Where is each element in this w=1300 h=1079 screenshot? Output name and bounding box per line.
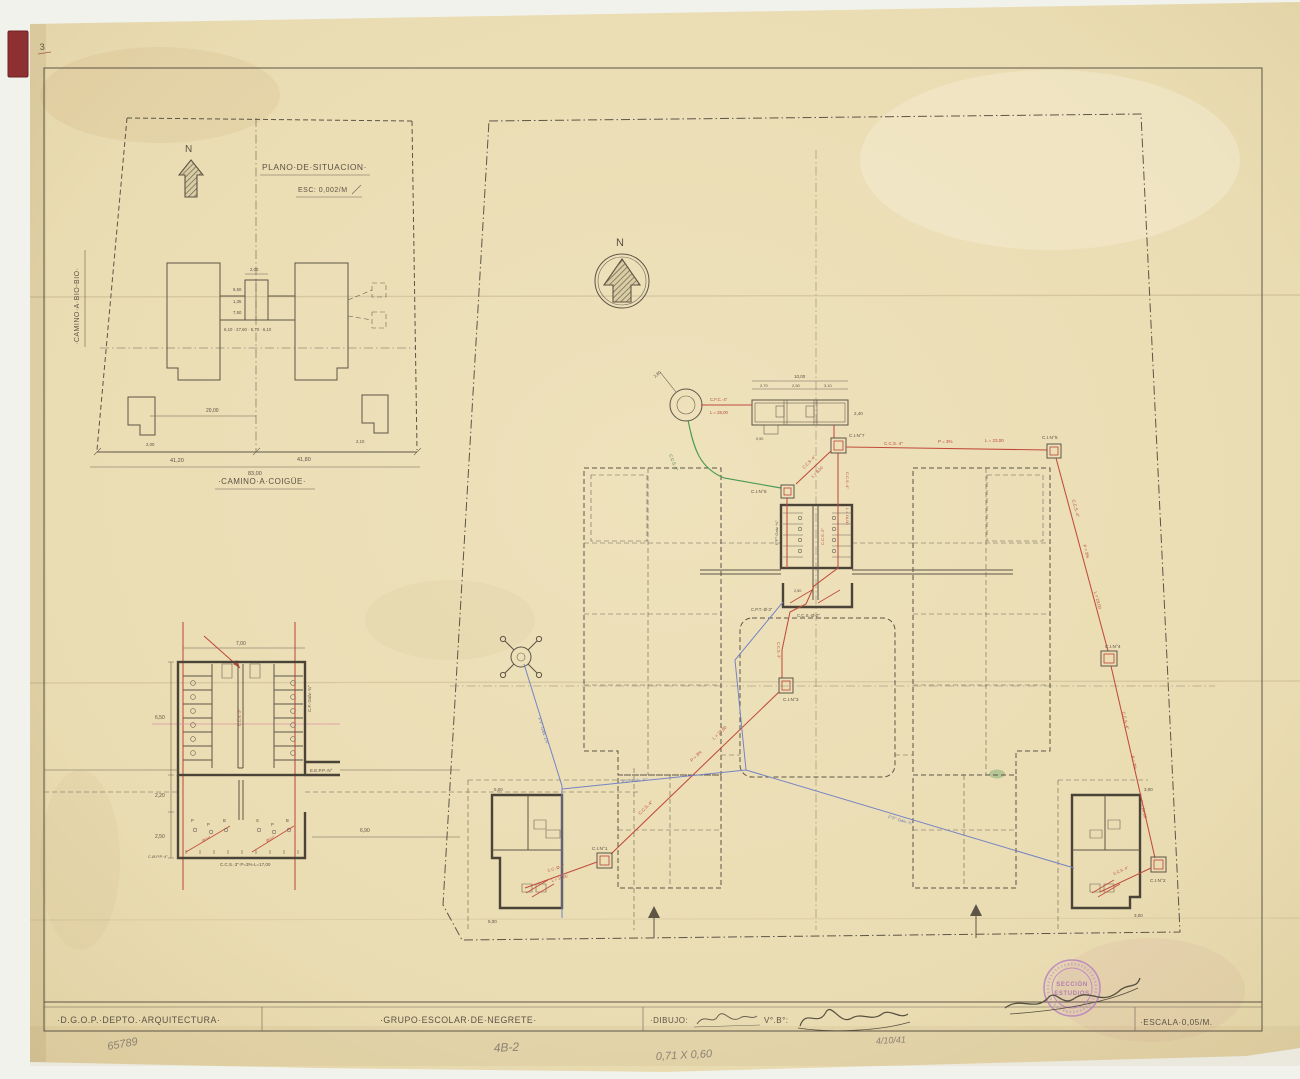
chamber-label-c4: C.I.N°4: [1105, 644, 1121, 650]
road-west-label: ·CAMINO·A·BIO-BIO·: [74, 268, 81, 345]
dim-text: 6,90: [360, 828, 370, 834]
dim-text: 0,90: [756, 437, 763, 441]
pipe-label: C.F.C.·4": [710, 397, 728, 402]
department-title: ·D.G.O.P.·DEPTO.·ARQUITECTURA·: [57, 1015, 220, 1025]
fixture-letter: B: [286, 818, 289, 823]
dim-text: 2,00: [250, 267, 259, 272]
pencil-code-mid: 4B-2: [493, 1040, 519, 1055]
approval-label: V°.B°:: [764, 1016, 789, 1025]
dim-text: 3,00: [1134, 913, 1143, 918]
pipe-label: P = 3%: [938, 439, 953, 444]
fixture-letter: S: [256, 818, 259, 823]
page-number-text: 3: [39, 42, 45, 52]
dim-text: 5,00: [488, 919, 497, 924]
pipe-label: L = 18,00: [845, 508, 850, 525]
drawing-label: ·DIBUJO:: [650, 1016, 688, 1025]
pipe-label: L = 28,00: [710, 410, 728, 415]
pipe-label: C.C.S.·4": [845, 472, 850, 489]
stamp-text-1: SECCIÓN: [1056, 980, 1088, 988]
pipe-label: C.C.S.·4": [884, 441, 903, 446]
dim-text: 20,00: [206, 408, 219, 414]
dim-text: 2,50: [155, 834, 165, 840]
dim-text: 3,00: [1144, 787, 1153, 792]
pipe-label: C.P.T.·Ø·3": [751, 607, 773, 612]
light-patch: [860, 70, 1240, 250]
chamber-label-c6: C.I.N°6: [751, 489, 767, 495]
fixture-letter: P: [207, 822, 210, 827]
stamp-text-2: ESTUDIOS: [1054, 991, 1089, 997]
north-letter: N: [185, 144, 192, 155]
dim-text: 5,00: [494, 787, 503, 792]
dim-text: 2,00: [146, 442, 155, 447]
stain: [40, 770, 120, 950]
dim-text: 6,10 · 27,60 · 5,70 · 6,10: [224, 327, 272, 332]
dim-text: 6,50: [155, 715, 165, 721]
stain: [40, 47, 280, 143]
fixture-letter: B: [223, 818, 226, 823]
chamber-label-c3: C.I.N°3: [783, 697, 799, 703]
eepp-label: E.E.P.P.·N°: [310, 768, 333, 773]
fixture-letter: P: [271, 822, 274, 827]
scanned-drawing-page: 3 N PLANO·DE·SITUACION· ESC: 0,002/M ·CA…: [0, 0, 1300, 1079]
dim-text: 2,50: [792, 383, 801, 388]
pipe-label-right: C.F.·Galv.·¾": [307, 685, 312, 712]
dim-text: 7,00: [236, 641, 246, 647]
pipe-label: C.C.S.·Ø·2": [797, 613, 820, 618]
north-letter: N: [616, 237, 624, 249]
chamber-label-c7: C.I.N°7: [849, 433, 865, 439]
fixture-letter: P: [191, 818, 194, 823]
project-title: ·GRUPO·ESCOLAR·DE·NEGRETE·: [380, 1015, 537, 1025]
dim-text: 2,10: [356, 439, 365, 444]
chamber-label-c1: C.I.N°1: [592, 846, 608, 852]
inset-scale: ESC: 0,002/M: [298, 187, 348, 194]
pencil-date: 4/10/41: [876, 1034, 907, 1046]
pipe-label: F°F°·Galv.·¾": [774, 520, 779, 545]
pipe-label: C.C.S.·3": [776, 642, 782, 659]
road-south-label: ·CAMINO·A·COIGÜE·: [218, 477, 306, 486]
dim-text: 83,00: [248, 471, 262, 477]
dim-text: 10,00: [794, 374, 806, 379]
blueprint-scan: 3 N PLANO·DE·SITUACION· ESC: 0,002/M ·CA…: [0, 0, 1300, 1079]
dim-text: 6,50: [233, 287, 242, 292]
dim-text: 2,50: [794, 589, 801, 593]
dim-text: 3,10: [824, 383, 833, 388]
dim-text: 7,50: [233, 310, 242, 315]
scale-label: ·ESCALA·0,05/M.: [1140, 1018, 1213, 1027]
bottom-pipe-label: C.C.S.·3"·P=3%·L=17,00: [220, 862, 271, 867]
chamber-label-c2: C.I.N°2: [1150, 878, 1166, 884]
pipe-label: C.C.S.·2": [820, 528, 825, 545]
pipe-label: L = 23,00: [985, 438, 1004, 443]
dim-text: 2,70: [760, 383, 769, 388]
dim-text: 1,35: [233, 299, 242, 304]
center-pipe-label: C.C.S.·2": [237, 709, 242, 726]
dim-text: 41,20: [170, 458, 184, 464]
inset-title: PLANO·DE·SITUACION·: [262, 162, 367, 172]
green-smudge: [989, 770, 1005, 779]
dim-text: 2,40: [854, 411, 863, 416]
stain: [365, 580, 535, 660]
archive-tab: [8, 31, 28, 77]
office-stamp: SECCIÓN ESTUDIOS: [1044, 960, 1100, 1016]
dim-text: 41,80: [297, 457, 311, 463]
chamber-label-c5: C.I.N°5: [1042, 435, 1058, 441]
dim-text: 2,20: [155, 793, 165, 799]
copp-label: C.Ø.P.P.·4": [148, 854, 168, 859]
